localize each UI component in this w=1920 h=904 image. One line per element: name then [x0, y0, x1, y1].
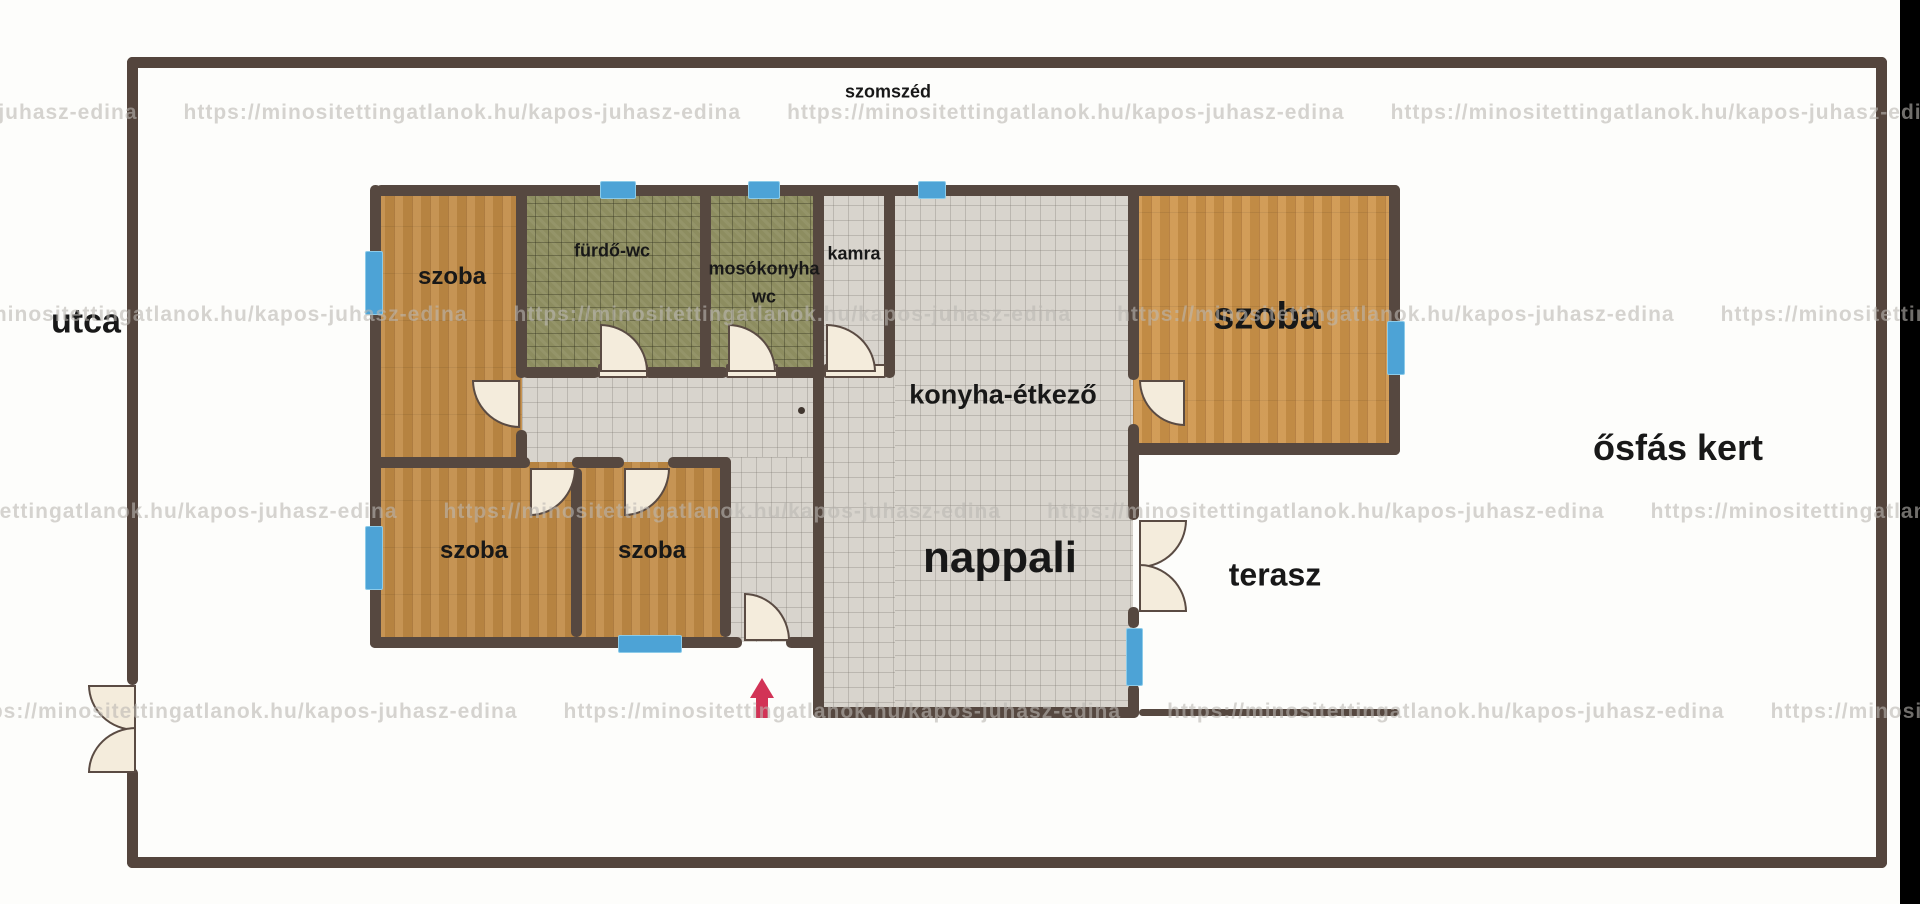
wall	[572, 457, 624, 468]
window	[600, 181, 636, 199]
room-label-szoba-top-left: szoba	[418, 263, 486, 291]
wall	[772, 367, 819, 378]
wall	[1128, 424, 1139, 520]
property-border-right	[1876, 57, 1887, 868]
room-label-mosokonyha: mosókonyha	[708, 259, 819, 280]
floor-plan-canvas: szoba fürdő-wc mosókonyha wc kamra konyh…	[0, 0, 1920, 904]
room-konyha-nappali-floor	[890, 190, 1133, 717]
room-label-furdo-wc: fürdő-wc	[574, 241, 650, 262]
window	[365, 526, 383, 590]
door-knob-dot	[798, 407, 805, 414]
label-utca: utca	[51, 303, 121, 342]
wall	[1389, 185, 1400, 455]
property-border-left-upper	[127, 57, 138, 685]
property-border-bottom	[127, 857, 1887, 868]
wall	[720, 457, 731, 637]
wall	[1128, 607, 1139, 628]
door-terasz-leaf-bottom	[1139, 564, 1187, 612]
wall	[884, 185, 895, 378]
room-label-nappali: nappali	[923, 533, 1077, 583]
terrace-edge-line	[1139, 709, 1399, 716]
room-label-szoba-bottom-2: szoba	[618, 537, 686, 565]
area-label-terasz: terasz	[1229, 557, 1322, 594]
door-terasz-leaf-top	[1139, 520, 1187, 568]
wall	[700, 185, 711, 378]
window	[365, 251, 383, 315]
screenshot-right-black-strip	[1900, 0, 1920, 904]
wall	[370, 457, 530, 468]
room-konyha-west-floor	[818, 372, 895, 712]
property-border-left-lower	[127, 768, 138, 868]
watermark-text: https://minositettingatlanok.hu/kapos-ju…	[0, 101, 1920, 125]
entrance-arrow-icon	[750, 678, 774, 698]
wall	[370, 637, 742, 648]
window	[918, 181, 946, 199]
room-label-kamra: kamra	[827, 244, 880, 265]
label-osfas-kert: ősfás kert	[1593, 427, 1763, 469]
room-label-szoba-bottom-1: szoba	[440, 537, 508, 565]
window	[1126, 628, 1143, 686]
property-border-top	[127, 57, 1887, 68]
entrance-arrow-icon	[756, 697, 768, 718]
wall	[1128, 185, 1139, 380]
window	[748, 181, 780, 199]
street-gate-door-leaf-top	[88, 685, 136, 731]
wall	[522, 367, 600, 378]
hallway-floor	[522, 372, 818, 463]
wall	[1128, 443, 1400, 455]
room-label-konyha-etkezo: konyha-étkező	[909, 380, 1097, 411]
wall	[644, 367, 728, 378]
label-szomszed: szomszéd	[845, 82, 931, 103]
wall	[813, 707, 1139, 718]
room-label-mosokonyha-wc: wc	[752, 287, 776, 308]
room-label-szoba-right: szoba	[1213, 296, 1321, 339]
window	[618, 635, 682, 653]
wall	[571, 468, 582, 637]
wall	[786, 637, 824, 648]
window	[1387, 321, 1405, 375]
street-gate-door-leaf-bottom	[88, 727, 136, 773]
wall	[516, 185, 527, 378]
